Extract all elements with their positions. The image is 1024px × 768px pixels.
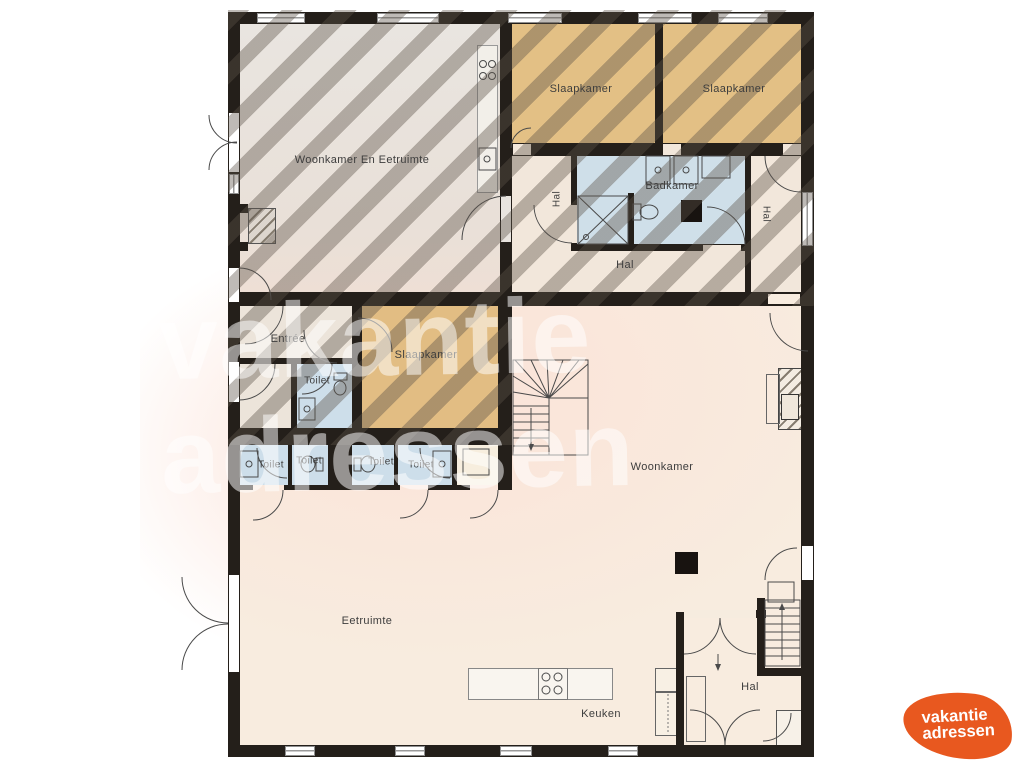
door-arc	[400, 490, 428, 518]
hall-door-arrow	[715, 654, 721, 671]
room-label-hall-upper-left: Hal	[552, 191, 563, 207]
door-arc	[770, 313, 808, 351]
door-arc	[470, 490, 498, 518]
door-arc	[182, 624, 228, 670]
room-label-hall-upper-right: Hal	[761, 206, 772, 222]
door-arc	[358, 318, 392, 352]
room-label-kitchen: Keuken	[581, 708, 621, 720]
room-label-bedroom-mid: Slaapkamer	[395, 349, 458, 361]
shelf-icon	[702, 156, 730, 178]
door-arc	[253, 490, 283, 520]
door-arc	[239, 364, 275, 400]
door-arcs	[182, 115, 808, 745]
door-arc	[720, 618, 756, 654]
room-label-entree: Entrée	[271, 333, 306, 345]
door-arc	[209, 142, 237, 170]
toilet-icon	[334, 373, 347, 380]
door-arc	[763, 713, 791, 741]
door-arc	[239, 268, 271, 300]
door-arc	[304, 330, 337, 363]
toilet-icon	[354, 458, 361, 471]
logo-text: vakantie adressen	[921, 707, 995, 742]
stairs-lower-right	[765, 582, 800, 666]
logo-blob-icon: vakantie adressen	[899, 686, 1016, 765]
room-label-bedroom-top-left: Slaapkamer	[550, 83, 613, 95]
door-arc	[534, 205, 572, 243]
door-arc	[690, 710, 725, 745]
room-label-bedroom-top-right: Slaapkamer	[703, 83, 766, 95]
door-arc	[209, 115, 237, 143]
logo-line2: adressen	[922, 723, 995, 742]
room-label-bathroom: Badkamer	[645, 180, 698, 192]
door-arc	[182, 577, 228, 623]
vakantieadressen-logo: vakantie adressen	[903, 692, 1013, 758]
door-arc	[765, 156, 801, 192]
plan-linework	[0, 0, 1024, 768]
door-arc	[511, 128, 531, 148]
door-arc	[765, 548, 797, 580]
shower-icon	[578, 196, 628, 244]
room-label-toilet-4: Toilet	[408, 460, 434, 471]
door-arc	[462, 196, 506, 240]
kitchen-counter-fixtures	[479, 61, 496, 171]
room-label-toilet-1: Toilet	[258, 460, 284, 471]
door-arc	[684, 618, 720, 654]
sink-icon	[299, 398, 315, 420]
stairs-middle	[513, 360, 588, 455]
room-label-toilet-mid: Toilet	[304, 376, 330, 387]
room-label-toilet-2: Toilet	[296, 456, 322, 467]
island-stove-icon	[542, 673, 562, 694]
room-label-dining: Eetruimte	[342, 615, 393, 627]
room-label-hall-lower: Hal	[741, 681, 759, 693]
door-arc	[707, 207, 745, 245]
door-arc	[725, 710, 760, 745]
sink-icon	[240, 451, 258, 477]
stove-icon	[480, 61, 487, 68]
room-label-hall-upper: Hal	[616, 259, 634, 271]
room-label-living-dining: Woonkamer En Eetruimte	[295, 154, 430, 166]
room-label-toilet-3: Toilet	[368, 457, 394, 468]
sink-icon	[479, 148, 496, 170]
closet-shelf-icon	[463, 449, 489, 475]
floorplan-canvas: Woonkamer En Eetruimte Slaapkamer Slaapk…	[0, 0, 1024, 768]
sink-icon	[433, 451, 451, 477]
room-label-living: Woonkamer	[631, 461, 694, 473]
